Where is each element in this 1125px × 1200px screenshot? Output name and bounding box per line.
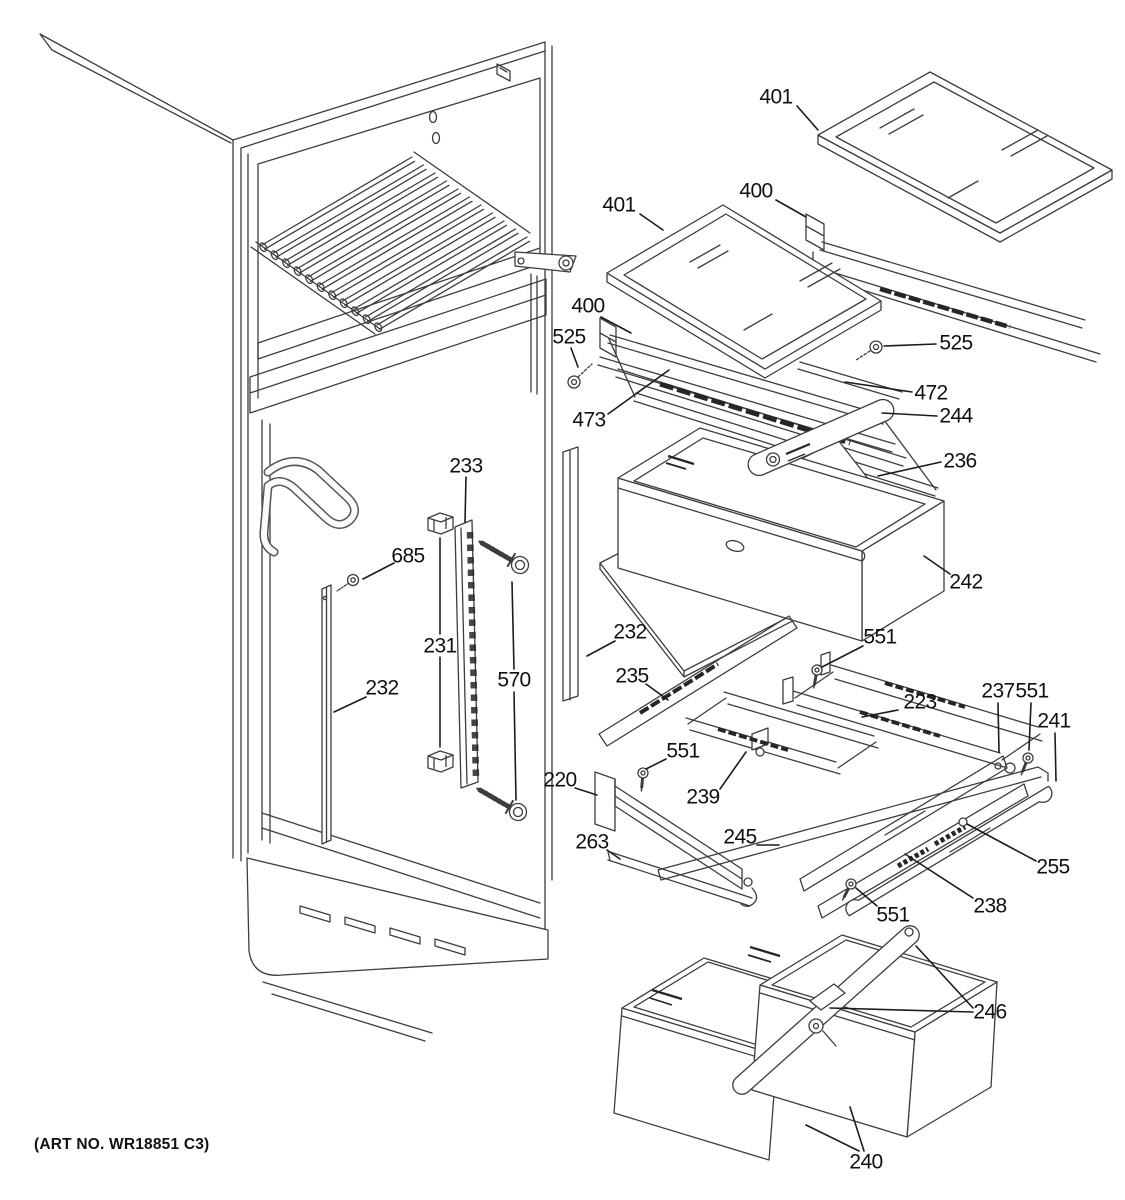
rail-263 xyxy=(608,852,752,906)
part-label-237: 237 xyxy=(981,681,1014,702)
part-label-223: 223 xyxy=(903,692,936,713)
part-label-231: 231 xyxy=(423,636,456,657)
part-label-241: 241 xyxy=(1037,711,1070,732)
tube-241 xyxy=(846,786,1052,915)
part-label-239: 239 xyxy=(686,787,719,808)
part-label-472: 472 xyxy=(914,383,947,404)
screws-551 xyxy=(636,664,1034,902)
part-label-242: 242 xyxy=(949,572,982,593)
part-label-220: 220 xyxy=(543,770,576,791)
part-label-233: 233 xyxy=(449,456,482,477)
screw-525-right xyxy=(856,341,882,360)
part-label-685: 685 xyxy=(391,546,424,567)
art-number: (ART NO. WR18851 C3) xyxy=(34,1136,209,1154)
freezer-roller-shelf xyxy=(251,152,530,334)
part-label-525-left: 525 xyxy=(552,327,585,348)
exploded-diagram-canvas xyxy=(0,0,1125,1200)
part-label-236: 236 xyxy=(943,451,976,472)
glass-shelf-401-right xyxy=(818,72,1112,242)
part-label-551-bottom: 551 xyxy=(876,905,909,926)
part-label-551-top: 551 xyxy=(863,627,896,648)
part-label-400-left: 400 xyxy=(571,296,604,317)
screw-525-left xyxy=(568,364,592,388)
part-label-245: 245 xyxy=(723,827,756,848)
part-label-400-right: 400 xyxy=(739,181,772,202)
part-label-255: 255 xyxy=(1036,857,1069,878)
trim-232-middle xyxy=(563,447,578,701)
part-label-235: 235 xyxy=(615,666,648,687)
refrigerator-cabinet xyxy=(40,34,576,1041)
trim-232-left xyxy=(322,585,331,844)
slide-frame-239 xyxy=(686,692,878,774)
water-tube xyxy=(264,461,355,552)
part-label-525-right: 525 xyxy=(939,333,972,354)
part-label-551-middle: 551 xyxy=(666,741,699,762)
diagram-page: 4014004014005255254724732442362422336852… xyxy=(0,0,1125,1200)
part-label-401-left: 401 xyxy=(602,195,635,216)
mount-track-233 xyxy=(455,520,478,788)
part-label-240: 240 xyxy=(849,1152,882,1173)
part-label-238: 238 xyxy=(973,896,1006,917)
part-label-232-middle: 232 xyxy=(613,622,646,643)
stud-255 xyxy=(959,818,967,826)
part-label-551-right: 551 xyxy=(1015,681,1048,702)
part-label-246: 246 xyxy=(973,1002,1006,1023)
part-label-401-right: 401 xyxy=(759,87,792,108)
glass-shelf-401-left xyxy=(607,205,881,378)
part-label-570: 570 xyxy=(497,670,530,691)
part-label-244: 244 xyxy=(939,406,972,427)
crisper-drawers-240 xyxy=(614,935,997,1160)
part-label-263: 263 xyxy=(575,832,608,853)
part-label-473: 473 xyxy=(572,410,605,431)
part-label-232-left: 232 xyxy=(365,678,398,699)
screw-685 xyxy=(337,575,359,592)
